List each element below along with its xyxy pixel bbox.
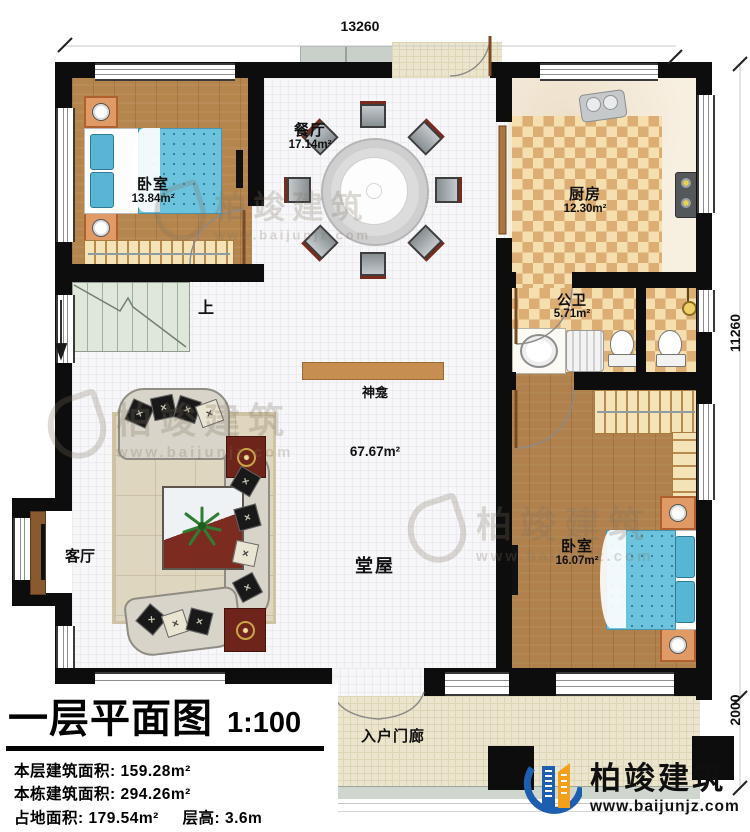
toilet-1-tank — [608, 354, 638, 367]
window-top-bedroom — [95, 63, 235, 81]
wall-bath-north — [572, 272, 712, 288]
shrine-shelf — [302, 362, 444, 380]
dining-chair-3 — [360, 252, 386, 276]
room-area: 5.71m² — [524, 308, 620, 321]
shrine-label: 神龛 — [347, 386, 403, 401]
room-label-living: 客厅 — [52, 548, 108, 565]
legend-panel: 一层平面图 1:100 本层建筑面积: 159.28m² 本栋建筑面积: 294… — [6, 684, 338, 830]
window-left-lower — [56, 626, 75, 668]
bed-tl-pillow-1 — [90, 134, 114, 170]
legend-value: 179.54m² — [88, 810, 158, 827]
tv-bedroom-r — [512, 545, 518, 595]
room-label-bedroom-r: 卧室 16.07m² — [529, 538, 625, 568]
dining-chair-5 — [287, 177, 311, 203]
stove-burner-2 — [681, 198, 691, 208]
nightstand-r-1 — [660, 496, 696, 530]
bed-r-pillow-1 — [675, 536, 695, 578]
legend-height-value: 3.6m — [225, 810, 262, 827]
wall-bath-south-a — [496, 372, 516, 390]
wall-bedroomr-north — [574, 372, 712, 390]
dimension-porch: 2000 — [727, 675, 743, 745]
toilet-2-tank — [656, 354, 686, 367]
nightstand-r-2 — [660, 628, 696, 662]
stairs-up-label: 上 — [192, 300, 220, 318]
window-left-bedroom — [56, 108, 75, 242]
nightstand-tl-1 — [84, 96, 118, 128]
dining-chair-1 — [435, 177, 459, 203]
brand-logo: 柏竣建筑 www.baijunjz.com — [518, 750, 746, 828]
tv-bedroom-tl — [236, 150, 243, 188]
legend-label: 本栋建筑面积: — [14, 786, 116, 803]
floor-plan-canvas: × × × × × × × × × × × — [0, 0, 750, 832]
window-bottom-bedroom — [556, 672, 674, 696]
bed-r-pillow-2 — [675, 581, 695, 623]
legend-label: 本层建筑面积: — [14, 763, 116, 780]
dining-table-center — [366, 183, 382, 199]
room-name: 厨房 — [537, 186, 633, 203]
brand-logo-icon — [518, 754, 582, 824]
room-name: 卧室 — [529, 538, 625, 555]
brand-website: www.baijunjz.com — [590, 798, 740, 816]
bath-sink — [520, 334, 558, 368]
room-name: 餐厅 — [262, 122, 358, 139]
window-left-stairs — [56, 295, 75, 363]
wall-kitchen-south — [496, 272, 516, 288]
staircase — [72, 282, 190, 352]
kitchen-sink-basin-2 — [603, 95, 618, 110]
room-area: 17.14m² — [262, 139, 358, 152]
room-label-bedroom-tl: 卧室 13.84m² — [105, 176, 201, 206]
legend-divider — [6, 746, 324, 751]
window-bottom-hall — [445, 672, 509, 696]
legend-height-label: 层高: — [182, 810, 220, 827]
room-name: 卧室 — [105, 176, 201, 193]
coffee-table-plant — [178, 502, 226, 550]
window-right-bath — [697, 290, 715, 332]
main-door-opening — [332, 668, 424, 696]
legend-value: 159.28m² — [120, 763, 190, 780]
room-label-bathroom: 公卫 5.71m² — [524, 292, 620, 321]
room-area: 12.30m² — [537, 203, 633, 216]
hall-area-label: 67.67m² — [335, 444, 415, 460]
end-table-2 — [224, 608, 266, 652]
window-top-kitchen — [540, 63, 658, 81]
wall-bedroomtl-south — [55, 264, 264, 282]
room-label-dining: 餐厅 17.14m² — [262, 122, 358, 152]
room-area: 16.07m² — [529, 555, 625, 568]
room-label-porch: 入户门廊 — [345, 728, 441, 745]
window-right-bedroom — [697, 404, 715, 500]
brand-name: 柏竣建筑 — [590, 763, 740, 794]
toilet-1 — [608, 330, 636, 370]
legend-floor-area: 本层建筑面积: 159.28m² — [6, 757, 338, 781]
wardrobe-r-top — [594, 390, 698, 434]
stove-burner-1 — [681, 178, 691, 188]
window-right-kitchen — [697, 95, 715, 213]
bath-shower — [566, 330, 604, 372]
sofa-pillow-7: × — [232, 540, 259, 567]
legend-footprint: 占地面积: 179.54m² 层高: 3.6m — [6, 804, 338, 828]
toilet-2 — [656, 330, 684, 370]
room-label-hall: 堂屋 — [340, 556, 410, 577]
dimension-top: 13260 — [325, 18, 395, 34]
plan-title: 一层平面图 — [8, 686, 213, 744]
legend-building-area: 本栋建筑面积: 294.26m² — [6, 781, 338, 805]
bay-wall-north — [12, 498, 72, 511]
bath-lamp-cord — [687, 288, 689, 302]
wall-hall-east — [496, 288, 512, 682]
back-door-opening — [392, 62, 490, 78]
legend-label: 占地面积: — [14, 810, 84, 827]
dining-chair-7 — [360, 104, 386, 128]
wall-bath-divider — [636, 288, 646, 372]
room-area: 13.84m² — [105, 193, 201, 206]
dimension-right: 11260 — [727, 298, 743, 368]
legend-value: 294.26m² — [120, 786, 190, 803]
room-label-kitchen: 厨房 12.30m² — [537, 186, 633, 216]
plan-scale: 1:100 — [227, 707, 301, 740]
room-name: 公卫 — [524, 292, 620, 308]
bath-lamp — [682, 301, 697, 316]
wall-kitchen-west-a — [496, 78, 512, 122]
tv-living — [41, 524, 45, 580]
